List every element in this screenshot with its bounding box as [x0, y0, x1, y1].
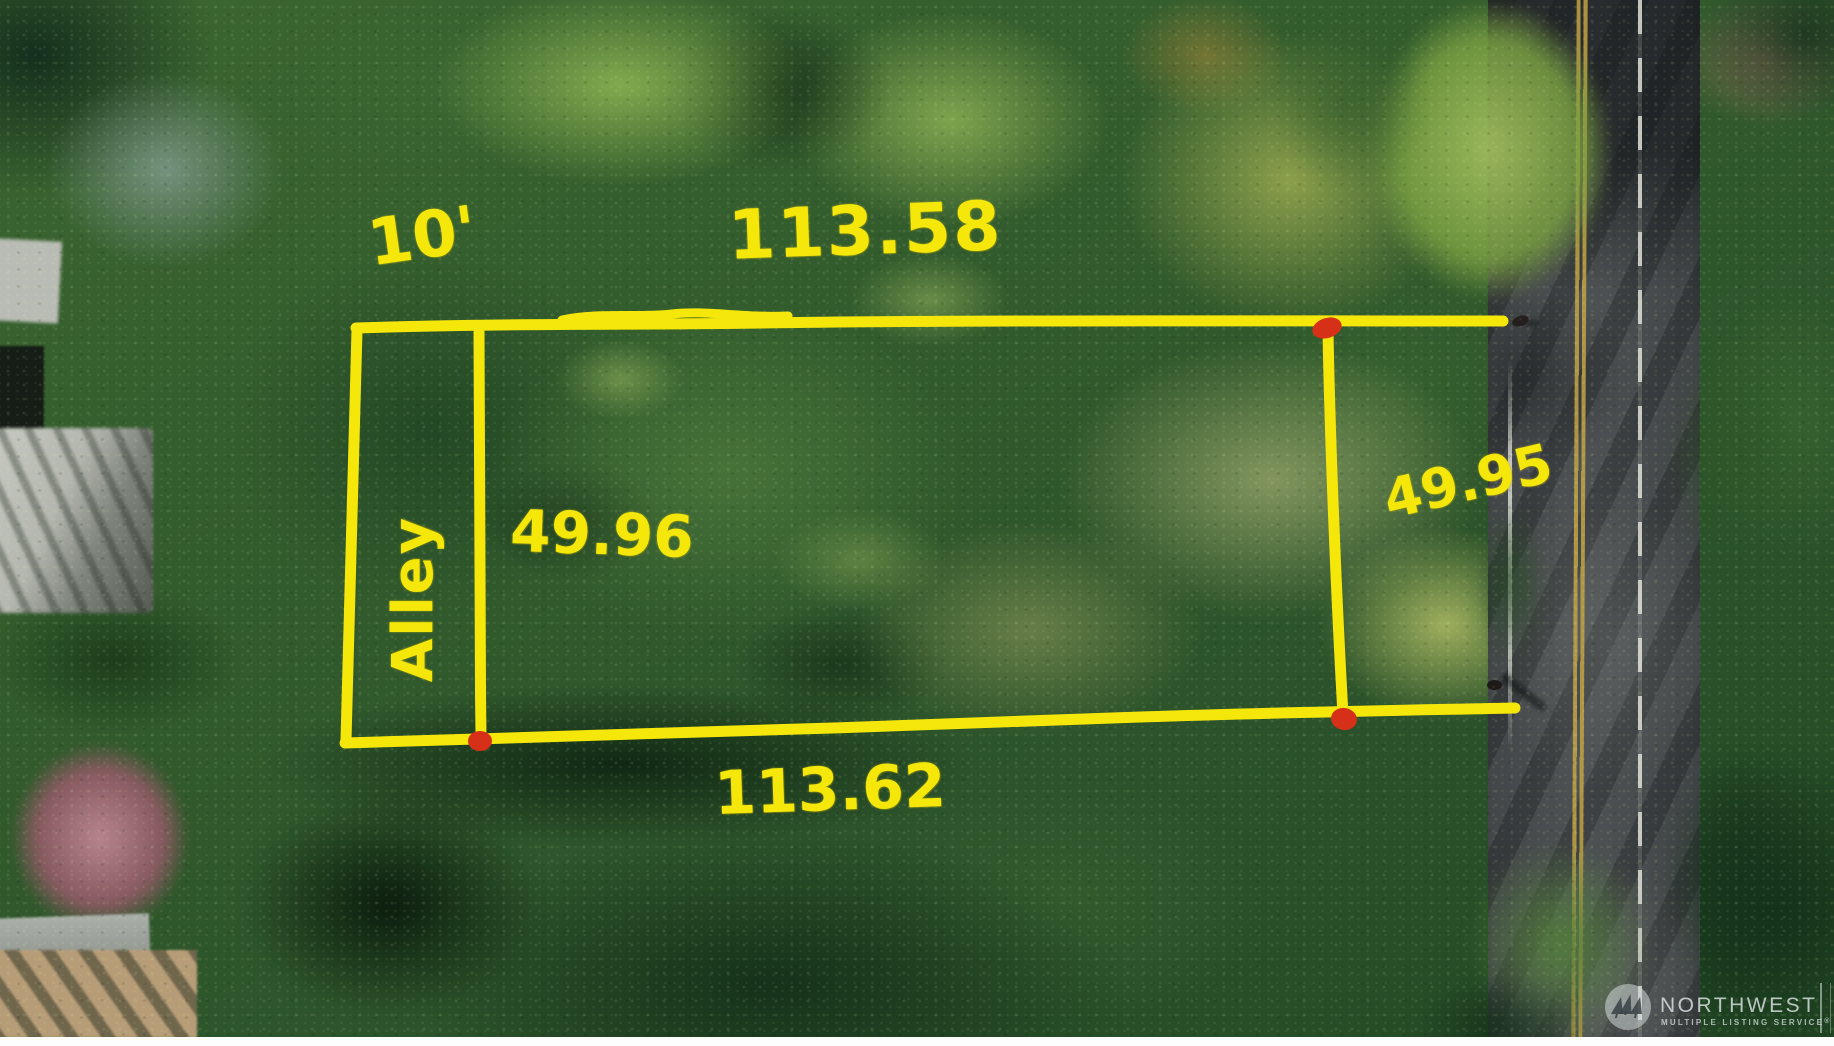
- dimension-south: 113.62: [689, 755, 971, 825]
- concrete-pad-lower: [0, 428, 153, 613]
- tree-shadow-area: [180, 750, 600, 1046]
- dark-structure: [0, 346, 44, 430]
- roadside-bushes-right: [1640, 300, 1830, 620]
- dimension-west: 49.96: [471, 500, 733, 567]
- bottom-white-margin: [0, 1037, 1834, 1046]
- watermark-tagline-text: MULTIPLE LISTING SERVICE®: [1661, 1018, 1832, 1027]
- watermark-brand-text: NORTHWEST: [1660, 994, 1817, 1018]
- nwmls-watermark: NORTHWEST MULTIPLE LISTING SERVICE®: [1598, 980, 1834, 1038]
- watermark-tagline: MULTIPLE LISTING SERVICE: [1661, 1018, 1824, 1027]
- pine-icon: [1630, 997, 1646, 1014]
- aerial-photo-stage: 10' 113.58 Alley 49.96 49.95 113.62 NORT…: [0, 0, 1834, 1046]
- watermark-divider-2: [1830, 983, 1831, 1033]
- pedestrian-lower: [1487, 680, 1502, 690]
- dimension-north: 113.58: [727, 193, 1004, 271]
- alley-label: Alley: [374, 489, 454, 709]
- watermark-divider: [1820, 983, 1822, 1033]
- gravel-driveway: [0, 950, 197, 1038]
- concrete-pad-upper: [0, 238, 62, 323]
- alley-width-label: 10': [364, 198, 481, 276]
- three-pines-icon: [1605, 984, 1651, 1030]
